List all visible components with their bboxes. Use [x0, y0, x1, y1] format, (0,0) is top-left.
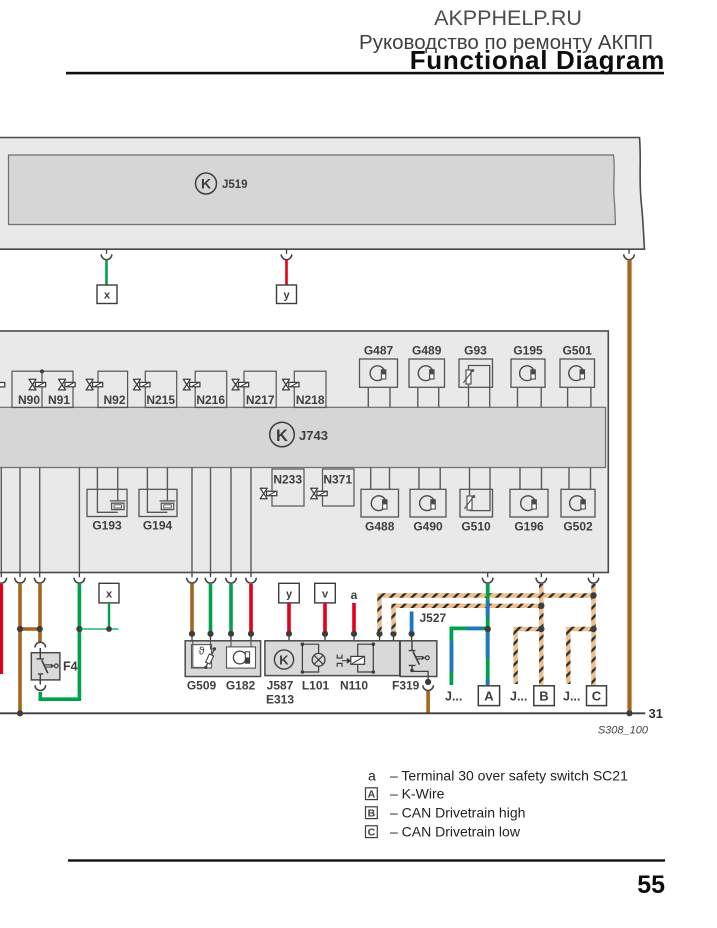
svg-text:J...: J... — [445, 690, 462, 704]
svg-text:N218: N218 — [296, 393, 325, 407]
svg-text:Functional Diagram: Functional Diagram — [410, 45, 665, 75]
svg-text:– CAN Drivetrain low: – CAN Drivetrain low — [390, 824, 521, 840]
svg-text:AKPPHELP.RU: AKPPHELP.RU — [434, 6, 582, 30]
svg-text:x: x — [104, 290, 111, 302]
svg-text:– K-Wire: – K-Wire — [390, 786, 445, 802]
svg-text:G487: G487 — [364, 344, 394, 358]
svg-text:N90: N90 — [18, 393, 40, 407]
svg-text:G193: G193 — [92, 519, 122, 533]
svg-text:a: a — [351, 588, 358, 602]
svg-text:G194: G194 — [143, 519, 173, 533]
svg-text:G490: G490 — [413, 520, 443, 534]
svg-text:55: 55 — [637, 871, 665, 899]
svg-text:J519: J519 — [222, 179, 248, 191]
svg-text:G501: G501 — [563, 344, 593, 358]
svg-text:– CAN Drivetrain high: – CAN Drivetrain high — [390, 805, 525, 821]
svg-text:G510: G510 — [461, 520, 491, 534]
svg-text:G489: G489 — [412, 344, 442, 358]
svg-text:N92: N92 — [103, 393, 125, 407]
svg-text:N215: N215 — [146, 393, 175, 407]
svg-text:G509: G509 — [187, 679, 217, 693]
svg-text:J743: J743 — [299, 428, 328, 443]
svg-text:F319: F319 — [392, 679, 420, 693]
svg-text:G93: G93 — [464, 344, 487, 358]
svg-text:J...: J... — [510, 690, 527, 704]
svg-text:J...: J... — [563, 690, 580, 704]
svg-text:y: y — [286, 589, 293, 601]
svg-text:S308_100: S308_100 — [598, 725, 649, 737]
svg-text:E313: E313 — [266, 693, 294, 707]
svg-text:J527: J527 — [420, 611, 447, 625]
svg-text:y: y — [283, 290, 290, 302]
svg-text:v: v — [322, 589, 329, 601]
svg-text:G182: G182 — [226, 679, 256, 693]
svg-text:L101: L101 — [302, 679, 330, 693]
svg-text:a: a — [368, 768, 376, 784]
svg-text:N233: N233 — [273, 473, 302, 487]
svg-text:x: x — [106, 589, 113, 601]
svg-text:C: C — [592, 689, 602, 704]
svg-text:G196: G196 — [514, 520, 544, 534]
svg-text:A: A — [368, 789, 376, 801]
svg-text:31: 31 — [649, 706, 663, 721]
svg-text:A: A — [484, 689, 494, 704]
svg-text:– Terminal 30 over safety swit: – Terminal 30 over safety switch SC21 — [390, 768, 628, 784]
svg-text:ϑ: ϑ — [198, 646, 204, 658]
svg-text:G502: G502 — [563, 520, 593, 534]
svg-text:G195: G195 — [513, 344, 543, 358]
svg-text:B: B — [368, 808, 376, 820]
svg-text:N216: N216 — [196, 393, 225, 407]
svg-text:F4: F4 — [63, 660, 78, 674]
svg-text:C: C — [368, 827, 376, 839]
svg-text:G488: G488 — [365, 520, 395, 534]
svg-text:N217: N217 — [246, 393, 275, 407]
svg-text:N371: N371 — [323, 473, 352, 487]
svg-text:J587: J587 — [267, 679, 294, 693]
svg-text:N91: N91 — [48, 393, 70, 407]
svg-text:K: K — [276, 427, 288, 445]
svg-text:K: K — [201, 176, 211, 192]
svg-text:B: B — [539, 689, 548, 704]
svg-text:K: K — [279, 652, 289, 667]
svg-text:N110: N110 — [340, 679, 368, 693]
